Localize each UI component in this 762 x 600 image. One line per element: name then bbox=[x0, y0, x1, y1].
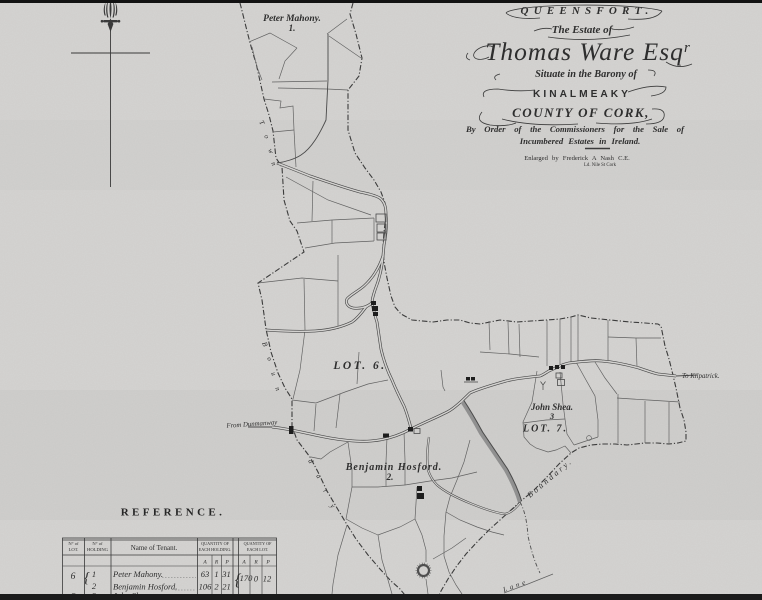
svg-text:Name of Tenant.: Name of Tenant. bbox=[131, 544, 178, 552]
svg-text:QUANTITY OF: QUANTITY OF bbox=[201, 541, 230, 546]
svg-text:P: P bbox=[265, 560, 270, 566]
svg-text:P: P bbox=[224, 560, 229, 566]
svg-text:R: R bbox=[214, 560, 219, 566]
svg-text:EACH LOT.: EACH LOT. bbox=[247, 547, 268, 552]
svg-text:Peter Mahony.: Peter Mahony. bbox=[112, 569, 163, 579]
svg-text:21: 21 bbox=[222, 582, 231, 592]
svg-text:12: 12 bbox=[263, 574, 272, 584]
svg-text:Thomas Ware Esqr: Thomas Ware Esqr bbox=[485, 37, 691, 66]
svg-text:170: 170 bbox=[240, 573, 254, 583]
svg-text:N° of: N° of bbox=[92, 541, 103, 546]
svg-text:Incumbered Estates in Ireland.: Incumbered Estates in Ireland. bbox=[519, 136, 641, 146]
svg-text:Enlarged by Frederick A Nash C: Enlarged by Frederick A Nash C.E. bbox=[524, 155, 630, 162]
svg-text:To Kilpatrick.: To Kilpatrick. bbox=[682, 373, 720, 380]
svg-text:A: A bbox=[241, 560, 246, 566]
svg-text:{: { bbox=[84, 570, 90, 586]
svg-text:Ld. Nile St Cork: Ld. Nile St Cork bbox=[584, 163, 617, 168]
svg-text:3: 3 bbox=[549, 411, 555, 421]
svg-text:QUANTITY OF: QUANTITY OF bbox=[244, 541, 273, 546]
svg-text:A: A bbox=[202, 560, 207, 566]
svg-text:COUNTY OF CORK,: COUNTY OF CORK, bbox=[512, 105, 650, 120]
svg-text:The Estate of: The Estate of bbox=[552, 24, 614, 36]
svg-text:Benjamin Hosford.: Benjamin Hosford. bbox=[345, 462, 442, 473]
svg-text:QUEENSFORT.: QUEENSFORT. bbox=[521, 5, 654, 17]
svg-text:6: 6 bbox=[71, 572, 76, 582]
svg-text:63: 63 bbox=[201, 569, 210, 579]
svg-text:106: 106 bbox=[199, 582, 213, 592]
svg-text:By Order of the Commissioners: By Order of the Commissioners for the Sa… bbox=[465, 124, 685, 134]
svg-text:Situate in the Barony of: Situate in the Barony of bbox=[535, 69, 638, 80]
svg-text:2.: 2. bbox=[386, 472, 394, 482]
svg-text:1: 1 bbox=[214, 569, 218, 579]
svg-text:31: 31 bbox=[221, 569, 231, 579]
svg-text:LOT. 6.: LOT. 6. bbox=[332, 360, 386, 372]
svg-text:REFERENCE.: REFERENCE. bbox=[121, 507, 226, 519]
svg-text:LOT.: LOT. bbox=[69, 547, 79, 552]
svg-text:R: R bbox=[253, 560, 258, 566]
svg-text:EACH HOLDING.: EACH HOLDING. bbox=[199, 547, 232, 552]
svg-text:KINALMEAKY: KINALMEAKY bbox=[533, 89, 631, 100]
svg-text:N° of: N° of bbox=[68, 541, 79, 546]
svg-text:1.: 1. bbox=[289, 23, 296, 33]
svg-text:LOT. 7.: LOT. 7. bbox=[522, 424, 568, 435]
svg-text:HOLDING: HOLDING bbox=[87, 547, 109, 552]
svg-text:1: 1 bbox=[92, 569, 96, 579]
